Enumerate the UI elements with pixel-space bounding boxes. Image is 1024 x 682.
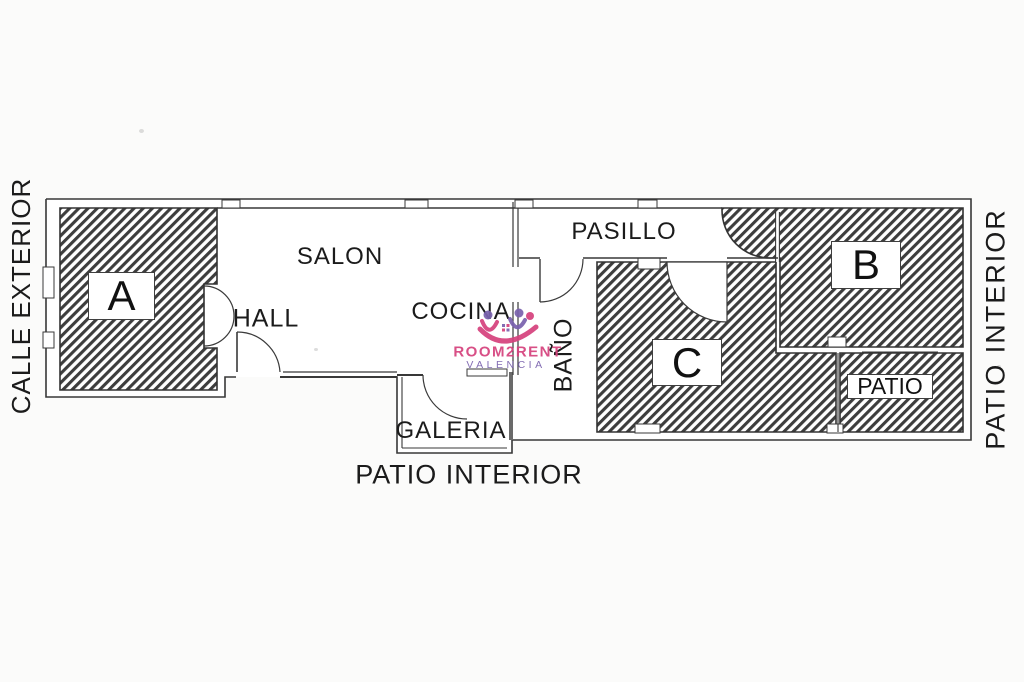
window-left-1 <box>43 267 54 298</box>
room-a-label-box: A <box>88 272 155 320</box>
wall-b-c <box>776 212 780 262</box>
window-top-3 <box>515 200 533 208</box>
room-b-label-box: B <box>831 241 901 289</box>
paper-speck <box>314 348 318 351</box>
window-top-2 <box>405 200 428 208</box>
patio-interior-right-label: PATIO INTERIOR <box>983 208 1010 450</box>
paper-speck <box>139 129 144 133</box>
window-top-1 <box>222 200 240 208</box>
salon-label: SALON <box>297 245 383 269</box>
floorplan-canvas: A B C PATIO SALON HALL COCINA PASILLO BA… <box>0 0 1024 682</box>
window-top-4 <box>638 200 657 208</box>
patio-interior-bottom-label: PATIO INTERIOR <box>355 462 583 489</box>
calle-exterior-label: CALLE EXTERIOR <box>8 178 34 415</box>
patio-label-box: PATIO <box>847 374 933 399</box>
room-c-label-box: C <box>652 339 722 386</box>
pasillo-label: PASILLO <box>571 220 676 244</box>
patio-label: PATIO <box>857 373 923 400</box>
room-a-label: A <box>107 272 135 320</box>
galeria-label: GALERIA <box>395 419 506 443</box>
room-b-label: B <box>852 241 880 289</box>
window-left-2 <box>43 332 54 348</box>
hall-label: HALL <box>233 307 300 332</box>
watermark-city-text: VALENCIA <box>466 359 545 371</box>
watermark-brand-text: ROOM2RENT <box>453 344 562 361</box>
room-c-label: C <box>672 339 702 387</box>
